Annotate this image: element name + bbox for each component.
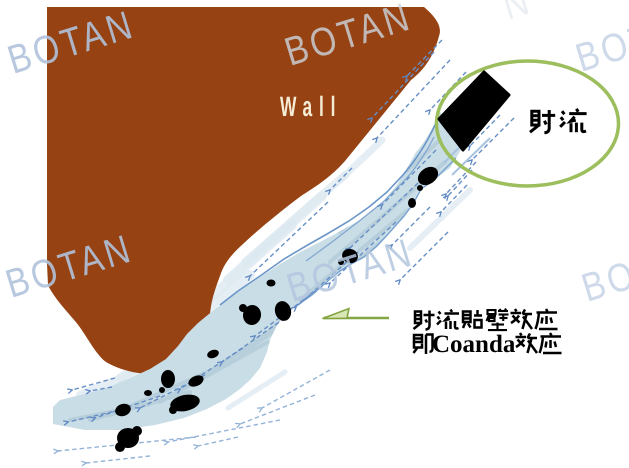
svg-text:Coanda: Coanda xyxy=(432,331,516,358)
svg-text:Wall: Wall xyxy=(280,91,342,122)
